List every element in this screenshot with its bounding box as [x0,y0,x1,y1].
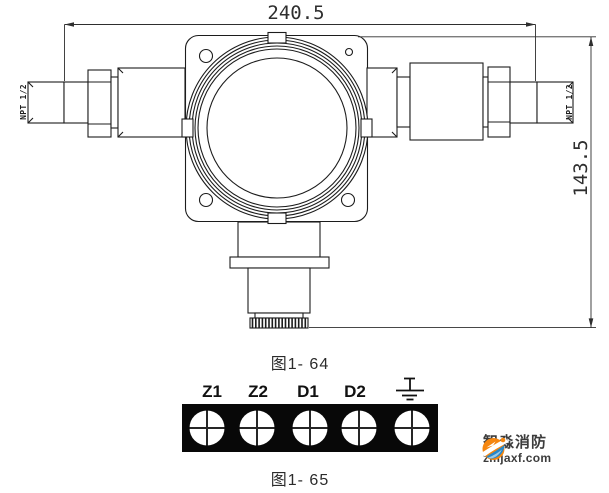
brand-logo-icon [481,435,508,462]
terminal-strip [182,404,438,452]
terminal-label-z1: Z1 [202,382,222,401]
ground-symbol-icon [396,379,424,400]
terminal-block-drawing: Z1 Z2 D1 D2 [0,0,609,462]
terminal-label-d1: D1 [297,382,319,401]
terminal-label-d2: D2 [344,382,366,401]
terminal-label-z2: Z2 [248,382,268,401]
page: 240.5 143.5 NPT 1/2 NPT 1/2 图1- 64 Z1 Z2… [0,0,609,493]
figure-65-caption: 图1- 65 [150,466,450,490]
watermark-logo: 智淼消防 zmjaxf.com [481,435,551,464]
